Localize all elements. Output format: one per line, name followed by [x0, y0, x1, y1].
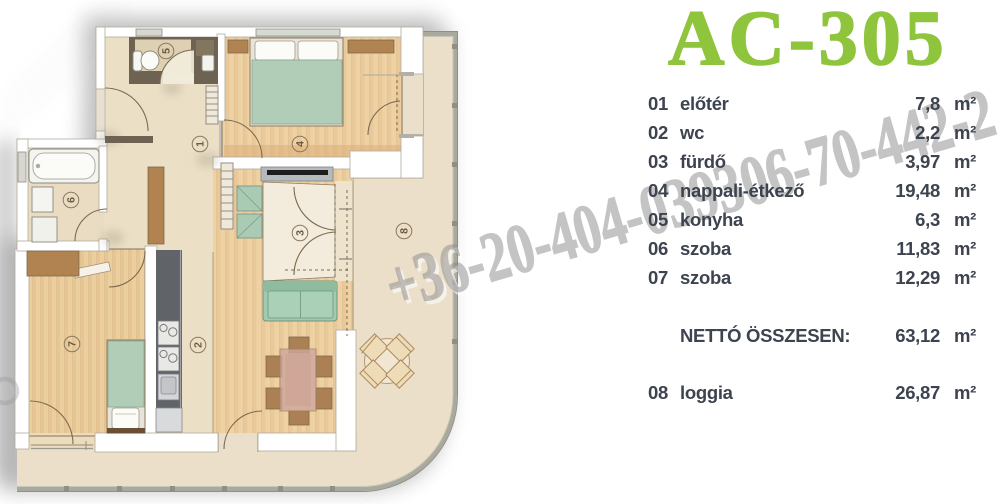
svg-text:AC-305: AC-305 — [668, 0, 948, 81]
svg-text:m²: m² — [954, 382, 976, 403]
svg-text:2,2: 2,2 — [915, 122, 940, 143]
svg-text:63,12: 63,12 — [895, 325, 940, 346]
svg-text:szoba: szoba — [680, 267, 732, 288]
svg-text:nappali-étkező: nappali-étkező — [680, 180, 804, 201]
svg-text:01: 01 — [648, 93, 668, 114]
svg-text:7: 7 — [67, 341, 79, 347]
svg-text:5: 5 — [161, 48, 173, 54]
svg-text:m²: m² — [954, 267, 976, 288]
svg-text:m²: m² — [954, 238, 976, 259]
svg-text:4: 4 — [295, 141, 307, 147]
svg-text:19,48: 19,48 — [895, 180, 940, 201]
svg-text:02: 02 — [648, 122, 668, 143]
svg-text:loggia: loggia — [680, 382, 734, 403]
svg-text:3: 3 — [295, 230, 307, 236]
svg-text:6,3: 6,3 — [915, 209, 940, 230]
svg-text:3,97: 3,97 — [905, 151, 940, 172]
svg-text:szoba: szoba — [680, 238, 732, 259]
svg-text:7,8: 7,8 — [915, 93, 940, 114]
svg-text:08: 08 — [648, 382, 668, 403]
svg-text:6: 6 — [66, 197, 78, 203]
svg-text:05: 05 — [648, 209, 668, 230]
svg-text:03: 03 — [648, 151, 668, 172]
svg-text:2: 2 — [193, 342, 205, 348]
svg-text:m²: m² — [954, 180, 976, 201]
svg-text:26,87: 26,87 — [895, 382, 940, 403]
svg-text:előtér: előtér — [680, 93, 729, 114]
svg-text:m²: m² — [954, 151, 976, 172]
svg-text:06: 06 — [648, 238, 668, 259]
svg-text:1: 1 — [195, 141, 207, 147]
svg-text:11,83: 11,83 — [896, 238, 940, 259]
svg-text:m²: m² — [954, 122, 976, 143]
svg-text:04: 04 — [648, 180, 669, 201]
svg-text:fürdő: fürdő — [680, 151, 726, 172]
svg-text:07: 07 — [648, 267, 668, 288]
svg-text:NETTÓ ÖSSZESEN:: NETTÓ ÖSSZESEN: — [680, 325, 850, 346]
svg-text:wc: wc — [679, 122, 704, 143]
svg-text:12,29: 12,29 — [895, 267, 940, 288]
svg-text:konyha: konyha — [680, 209, 744, 230]
svg-text:m²: m² — [954, 325, 976, 346]
svg-text:8: 8 — [399, 228, 411, 234]
svg-text:m²: m² — [954, 93, 976, 114]
svg-text:m²: m² — [954, 209, 976, 230]
